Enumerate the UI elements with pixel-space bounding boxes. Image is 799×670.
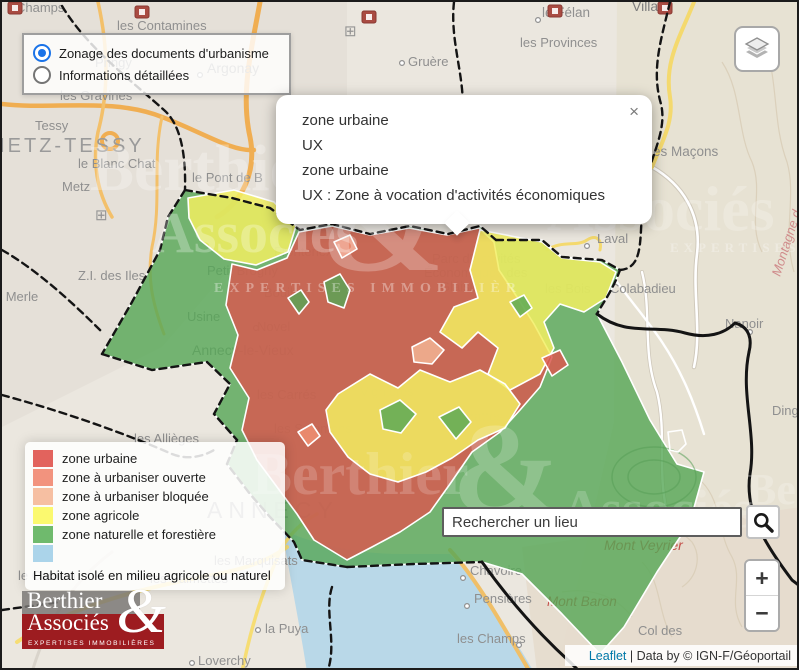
village-dot [536,18,541,23]
map-label: Pensières [474,591,532,606]
map-label: Loverchy [198,653,251,668]
popup-line: zone urbaine [302,158,612,183]
map-label: la Puya [265,621,309,636]
map-label: les Champs [457,631,526,646]
leaflet-link[interactable]: Leaflet [589,649,627,663]
map-label: Metz [62,179,90,194]
map-label: les Provinces [520,35,598,50]
legend-label: zone urbaine [62,451,137,466]
radio-informations-label: Informations détaillées [59,68,189,83]
zoom-control: + − [744,559,780,632]
legend-label: zone à urbaniser ouverte [62,470,206,485]
berthier-associes-logo: Berthier Associés EXPERTISES IMMOBILIÈRE… [22,591,164,649]
map-label: Z.I. des Iles [78,268,146,283]
feature-info-popup: zone urbaineUXzone urbaineUX : Zone à vo… [276,95,652,224]
popup-line: UX [302,133,612,158]
legend-item [33,545,275,562]
popup-content: zone urbaineUXzone urbaineUX : Zone à vo… [302,108,612,208]
search-icon [751,510,775,534]
legend-label: zone agricole [62,508,139,523]
map-label: les Maçons [650,144,719,159]
poi-icon-glyph [366,14,372,20]
village-dot [585,244,590,249]
zoom-out-button[interactable]: − [746,596,778,630]
building-grid-icon: ⊞ [344,23,357,40]
attribution-text: Data by © IGN-F/Géoportail [637,649,791,663]
legend-swatch [33,526,53,543]
search-input[interactable] [442,507,742,537]
layers-icon [742,34,772,64]
legend-rows: zone urbainezone à urbaniser ouvertezone… [33,450,275,562]
map-label: Tessy [35,118,69,133]
popup-close-button[interactable]: × [629,102,639,122]
radio-selected-icon[interactable] [33,44,51,62]
legend-label: zone à urbaniser bloquée [62,489,209,504]
radio-informations-detaillees[interactable]: Informations détaillées [33,64,280,86]
popup-line: zone urbaine [302,108,612,133]
legend-item: zone urbaine [33,450,275,467]
legend-label: zone naturelle et forestière [62,527,216,542]
attribution-bar: Leaflet | Data by © IGN-F/Géoportail [565,645,797,666]
attribution-separator: | [626,649,636,663]
watermark-text: EXPERTISES IM [670,240,799,255]
poi-icon-glyph [12,5,18,11]
legend-item: zone agricole [33,507,275,524]
radio-zonage-label: Zonage des documents d'urbanisme [59,46,269,61]
popup-line: UX : Zone à vocation d'activités économi… [302,183,612,208]
legend-swatch [33,507,53,524]
map-application: Champsles Contaminesle Félanles Province… [0,0,799,670]
map-label: Gruère [408,54,448,69]
village-dot [190,661,195,666]
map-label: Dingy [772,403,799,418]
building-grid-icon: ⊞ [95,207,108,224]
logo-ampersand-icon: & [116,579,166,643]
legend-swatch [33,450,53,467]
map-label: Champs [16,2,65,15]
legend-item: zone naturelle et forestière [33,526,275,543]
map-label: le Merle [2,289,38,304]
map-label: Col des [638,623,683,638]
poi-icon-glyph [662,5,668,11]
legend-swatch [33,488,53,505]
map-label: les Contamines [117,18,207,33]
legend-item: zone à urbaniser ouverte [33,469,275,486]
logo-line2: Associés [27,610,109,636]
poi-icon-glyph [552,8,558,14]
village-dot [461,576,466,581]
radio-unselected-icon[interactable] [33,66,51,84]
legend-item: zone à urbaniser bloquée [33,488,275,505]
search-button[interactable] [746,505,780,539]
zoom-in-button[interactable]: + [746,561,778,595]
village-dot [517,643,522,648]
village-dot [256,628,261,633]
village-dot [465,604,470,609]
ukraine-flag-icon [572,651,585,660]
legend-swatch [33,469,53,486]
zoning-legend: zone urbainezone à urbaniser ouvertezone… [25,442,285,590]
map-label: Colabadieu [610,281,676,296]
display-mode-panel: Zonage des documents d'urbanisme Informa… [22,33,291,95]
poi-icon-glyph [139,9,145,15]
radio-zonage-documents[interactable]: Zonage des documents d'urbanisme [33,42,280,64]
layers-control-button[interactable] [734,26,780,72]
village-dot [400,61,405,66]
legend-swatch [33,545,53,562]
